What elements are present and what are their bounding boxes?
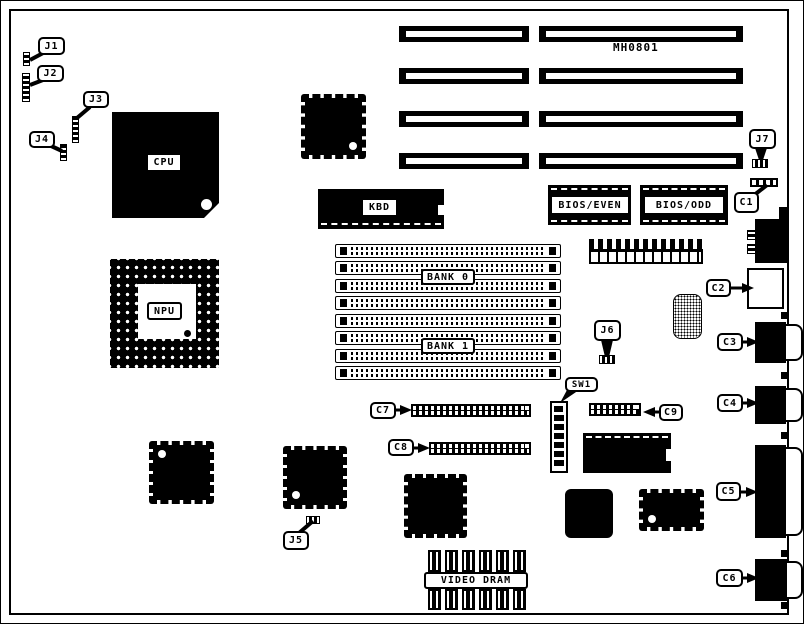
callout-c6: C6: [716, 569, 743, 587]
c8-header: [429, 442, 531, 455]
callout-c2: C2: [706, 279, 731, 297]
j6-jumper: [599, 355, 615, 364]
bank1-label: BANK 1: [421, 338, 475, 354]
cpu-label: CPU: [148, 155, 180, 170]
qfp-chip: [404, 474, 467, 538]
edge-notch: [781, 312, 787, 319]
video-dram-chip: [428, 589, 441, 610]
dip-chip: [583, 433, 671, 473]
board-model-label: MH0801: [613, 41, 659, 54]
pin1-dot: [201, 199, 212, 210]
callout-j5: J5: [283, 531, 309, 550]
callout-c4: C4: [717, 394, 743, 412]
callout-c9: C9: [659, 404, 683, 421]
crystal-oscillator: [673, 294, 702, 339]
video-dram-chip: [479, 589, 492, 610]
c2-connector: [747, 268, 784, 309]
expansion-slot: [539, 26, 743, 42]
sw1-switches: [554, 415, 564, 468]
c5-shell: [784, 447, 803, 536]
j5-jumper: [306, 516, 320, 524]
c6-shell: [785, 561, 803, 599]
qfp-chip: [301, 94, 366, 159]
callout-sw1: SW1: [565, 377, 598, 392]
pin1-dot: [292, 491, 300, 499]
pin1-dot: [648, 515, 656, 523]
expansion-slot: [399, 26, 529, 42]
j2-jumper: [22, 73, 30, 102]
pin1-dot: [184, 330, 191, 337]
c9-header: [589, 403, 641, 416]
keyboard-connector: [755, 219, 787, 263]
video-dram-label: VIDEO DRAM: [424, 572, 528, 589]
npu-label: NPU: [147, 302, 182, 320]
callout-c1: C1: [734, 192, 759, 213]
callout-c7: C7: [370, 402, 396, 419]
terminal-strip: [589, 250, 703, 264]
simm-socket: [335, 366, 561, 380]
video-dram-chip: [428, 550, 441, 572]
video-dram-chip: [513, 589, 526, 610]
expansion-slot: [539, 68, 743, 84]
c6-connector: [755, 559, 787, 601]
video-dram-chip: [462, 589, 475, 610]
video-dram-chip: [479, 550, 492, 572]
callout-c5: C5: [716, 482, 741, 501]
kbd-label: KBD: [363, 200, 396, 215]
j7-jumper: [752, 159, 768, 168]
qfp-chip: [149, 441, 214, 504]
callout-j1: J1: [38, 37, 65, 55]
bios-odd-label: BIOS/ODD: [645, 197, 723, 213]
callout-j2: J2: [37, 65, 64, 82]
callout-c3: C3: [717, 333, 743, 351]
edge-notch: [781, 602, 787, 609]
video-dram-chip: [513, 550, 526, 572]
square-chip: [565, 489, 613, 538]
c4-shell: [784, 388, 803, 422]
video-dram-chip: [496, 550, 509, 572]
callout-j4: J4: [29, 131, 55, 148]
qfp-chip: [283, 446, 347, 509]
bios-even-label: BIOS/EVEN: [552, 197, 628, 213]
connector-tab: [747, 244, 756, 254]
pin1-pad: [635, 405, 639, 409]
sw1-dip-switch: [550, 401, 568, 473]
edge-notch: [781, 550, 787, 557]
simm-socket: [335, 244, 561, 258]
video-dram-chip: [462, 550, 475, 572]
edge-notch: [781, 372, 787, 379]
j3-jumper: [72, 116, 79, 143]
bank0-label: BANK 0: [421, 269, 475, 285]
connector-tab: [747, 230, 756, 240]
chip-notch: [666, 449, 671, 461]
pin1-pad: [525, 444, 529, 448]
c3-shell: [784, 324, 803, 361]
c7-header: [411, 404, 531, 417]
simm-socket: [335, 314, 561, 328]
video-dram-chip: [445, 550, 458, 572]
callout-j6: J6: [594, 320, 621, 341]
pin1-dot: [158, 450, 166, 458]
simm-socket: [335, 296, 561, 310]
video-dram-chip: [496, 589, 509, 610]
pin1-pad: [525, 406, 529, 410]
callout-j3: J3: [83, 91, 109, 108]
socket-dashes: [321, 223, 441, 225]
expansion-slot: [399, 111, 529, 127]
expansion-slot: [399, 68, 529, 84]
video-dram-chip: [445, 589, 458, 610]
c1-header: [750, 178, 778, 187]
chip-notch: [438, 205, 444, 215]
c5-connector: [755, 445, 786, 538]
pin1-dot: [349, 142, 357, 150]
edge-notch: [781, 432, 787, 439]
callout-j7: J7: [749, 129, 776, 149]
expansion-slot: [539, 153, 743, 169]
c4-connector: [755, 386, 786, 424]
motherboard-diagram: MH0801 CPU NPU KBD BIOS/EVEN BIOS/OD: [0, 0, 804, 624]
sw1-switch-1: [554, 406, 563, 412]
j4-jumper: [60, 144, 67, 161]
c3-connector: [755, 322, 786, 363]
expansion-slot: [399, 153, 529, 169]
callout-c8: C8: [388, 439, 414, 456]
qfp-chip: [639, 489, 704, 531]
expansion-slot: [539, 111, 743, 127]
j1-jumper: [23, 52, 30, 66]
